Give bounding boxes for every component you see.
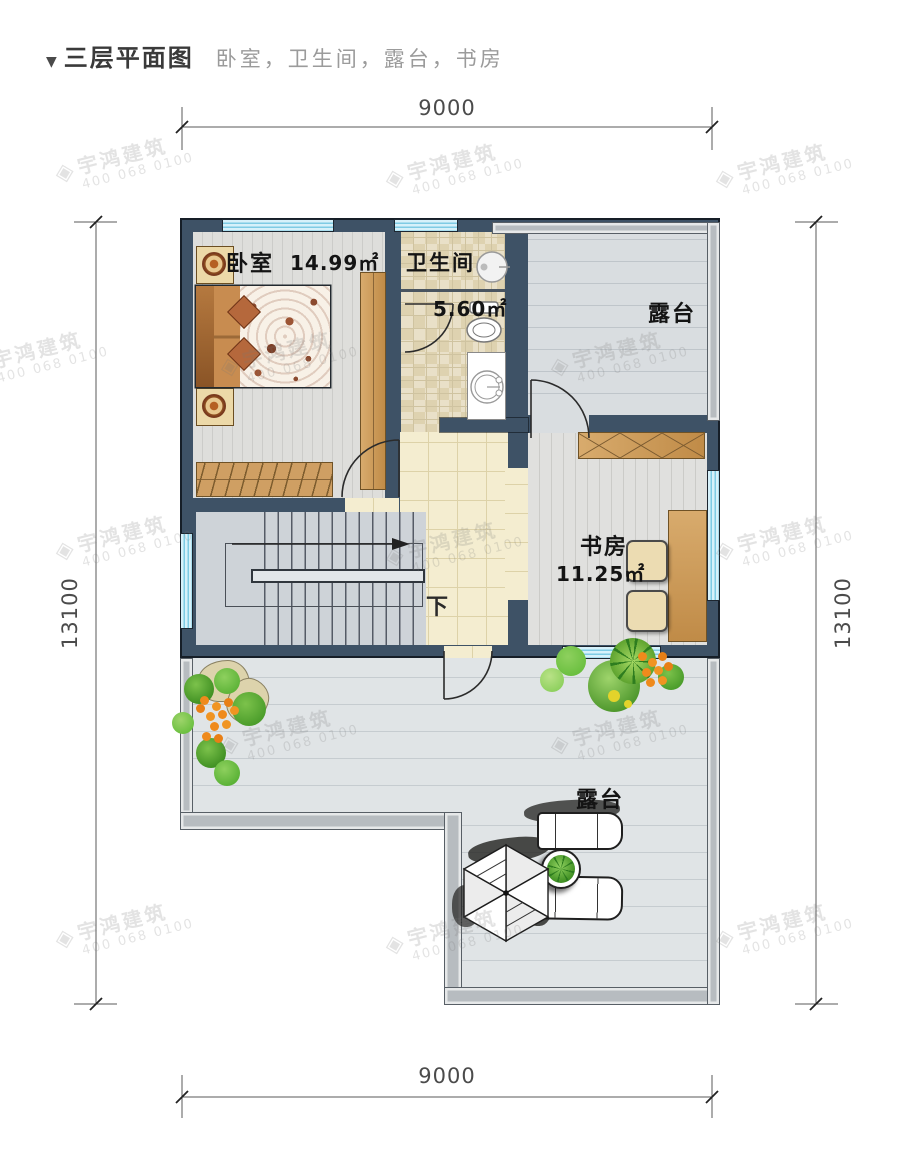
bush-icon bbox=[172, 712, 194, 734]
plan-subtitle: 卧室，卫生间，露台，书房 bbox=[216, 43, 504, 73]
watermark-logo-icon: ◈ bbox=[53, 925, 76, 951]
bathroom-bottom-wall bbox=[440, 418, 528, 432]
bathroom-area: 5.60㎡ bbox=[433, 293, 507, 322]
watermark-text: 宇鸿建筑 bbox=[735, 896, 851, 943]
watermark: ◈宇鸿建筑400 068 0100 bbox=[0, 324, 111, 392]
bedroom-area: 14.99㎡ bbox=[290, 247, 379, 276]
watermark: ◈宇鸿建筑400 068 0100 bbox=[53, 896, 196, 964]
bathroom-window bbox=[394, 219, 458, 232]
sink-counter bbox=[467, 352, 506, 420]
bedroom-door-gap bbox=[345, 498, 399, 512]
bush-icon bbox=[540, 668, 564, 692]
triangle-marker-icon: ▼ bbox=[46, 54, 57, 70]
terrace-top-label: 露台 bbox=[648, 296, 696, 328]
plan-title: 三层平面图 bbox=[64, 38, 194, 73]
desk-chair bbox=[626, 590, 668, 632]
bed-blanket bbox=[240, 286, 330, 387]
parapet-top-right bbox=[707, 222, 720, 421]
watermark-phone: 400 068 0100 bbox=[741, 156, 856, 198]
hallway-opening bbox=[505, 468, 528, 600]
study-label: 书房 bbox=[580, 529, 628, 561]
bedroom-window bbox=[222, 219, 334, 232]
parasol-umbrella-icon bbox=[452, 838, 562, 950]
bathroom-label: 卫生间 bbox=[406, 247, 475, 277]
watermark-logo-icon: ◈ bbox=[53, 159, 76, 185]
dimension-left: 13100 bbox=[58, 579, 82, 649]
stair-handrail bbox=[251, 569, 425, 583]
watermark: ◈宇鸿建筑400 068 0100 bbox=[713, 508, 856, 576]
terrace-bottom-label: 露台 bbox=[576, 782, 624, 814]
watermark-logo-icon: ◈ bbox=[383, 931, 406, 957]
palm-plant-icon bbox=[610, 638, 656, 684]
watermark-logo-icon: ◈ bbox=[383, 165, 406, 191]
bathroom-divider-wall bbox=[401, 289, 505, 292]
bush-icon bbox=[232, 692, 266, 726]
parapet-bottom-right bbox=[444, 987, 720, 1005]
yellow-flower-icon bbox=[608, 690, 620, 702]
watermark-text: 宇鸿建筑 bbox=[0, 324, 107, 371]
parapet-bottom-left bbox=[180, 812, 460, 830]
terrace-door-gap bbox=[531, 415, 589, 433]
bush-icon bbox=[184, 674, 214, 704]
hall-terrace-door-gap bbox=[444, 646, 492, 658]
bush-icon bbox=[214, 760, 240, 786]
watermark-text: 宇鸿建筑 bbox=[735, 508, 851, 555]
stairwell-window bbox=[180, 533, 193, 629]
watermark-phone: 400 068 0100 bbox=[0, 344, 111, 386]
stairs-down-label: 下 bbox=[426, 589, 448, 621]
lamp-icon bbox=[202, 252, 226, 276]
flowers-icon bbox=[638, 652, 647, 661]
watermark-phone: 400 068 0100 bbox=[81, 916, 196, 958]
study-area: 11.25㎡ bbox=[556, 558, 645, 587]
bedroom-label: 卧室 bbox=[226, 246, 274, 278]
watermark-text: 宇鸿建筑 bbox=[735, 136, 851, 183]
watermark-phone: 400 068 0100 bbox=[741, 528, 856, 570]
nightstand bbox=[196, 388, 234, 426]
watermark: ◈宇鸿建筑400 068 0100 bbox=[713, 136, 856, 204]
bed bbox=[196, 286, 330, 387]
watermark-text: 宇鸿建筑 bbox=[75, 130, 191, 177]
watermark-phone: 400 068 0100 bbox=[741, 916, 856, 958]
bed-headboard bbox=[196, 286, 215, 387]
watermark-phone: 400 068 0100 bbox=[81, 528, 196, 570]
watermark: ◈宇鸿建筑400 068 0100 bbox=[53, 130, 196, 198]
watermark: ◈宇鸿建筑400 068 0100 bbox=[383, 136, 526, 204]
watermark: ◈宇鸿建筑400 068 0100 bbox=[713, 896, 856, 964]
watermark-phone: 400 068 0100 bbox=[411, 156, 526, 198]
page-title: ▼ 三层平面图 卧室，卫生间，露台，书房 bbox=[46, 38, 504, 73]
bookshelf bbox=[196, 462, 333, 497]
parapet-top bbox=[492, 222, 720, 234]
bush-icon bbox=[658, 664, 684, 690]
watermark-phone: 400 068 0100 bbox=[81, 150, 196, 192]
floor-plan-page: ▼ 三层平面图 卧室，卫生间，露台，书房 9000 9000 13100 131… bbox=[0, 0, 910, 1163]
flowers-icon bbox=[200, 696, 209, 705]
lamp-icon bbox=[202, 394, 226, 418]
study-wardrobe bbox=[578, 432, 705, 459]
parapet-right bbox=[707, 658, 720, 1005]
dimension-top: 9000 bbox=[407, 96, 487, 120]
watermark-text: 宇鸿建筑 bbox=[75, 508, 191, 555]
dimension-right: 13100 bbox=[831, 579, 855, 649]
watermark-logo-icon: ◈ bbox=[713, 165, 736, 191]
watermark-text: 宇鸿建筑 bbox=[75, 896, 191, 943]
watermark: ◈宇鸿建筑400 068 0100 bbox=[53, 508, 196, 576]
bedroom-wardrobe bbox=[360, 272, 386, 490]
bush-icon bbox=[214, 668, 240, 694]
watermark-text: 宇鸿建筑 bbox=[405, 136, 521, 183]
dimension-bottom: 9000 bbox=[407, 1064, 487, 1088]
study-window-right bbox=[707, 470, 720, 601]
watermark-logo-icon: ◈ bbox=[53, 537, 76, 563]
study-desk bbox=[668, 510, 707, 642]
